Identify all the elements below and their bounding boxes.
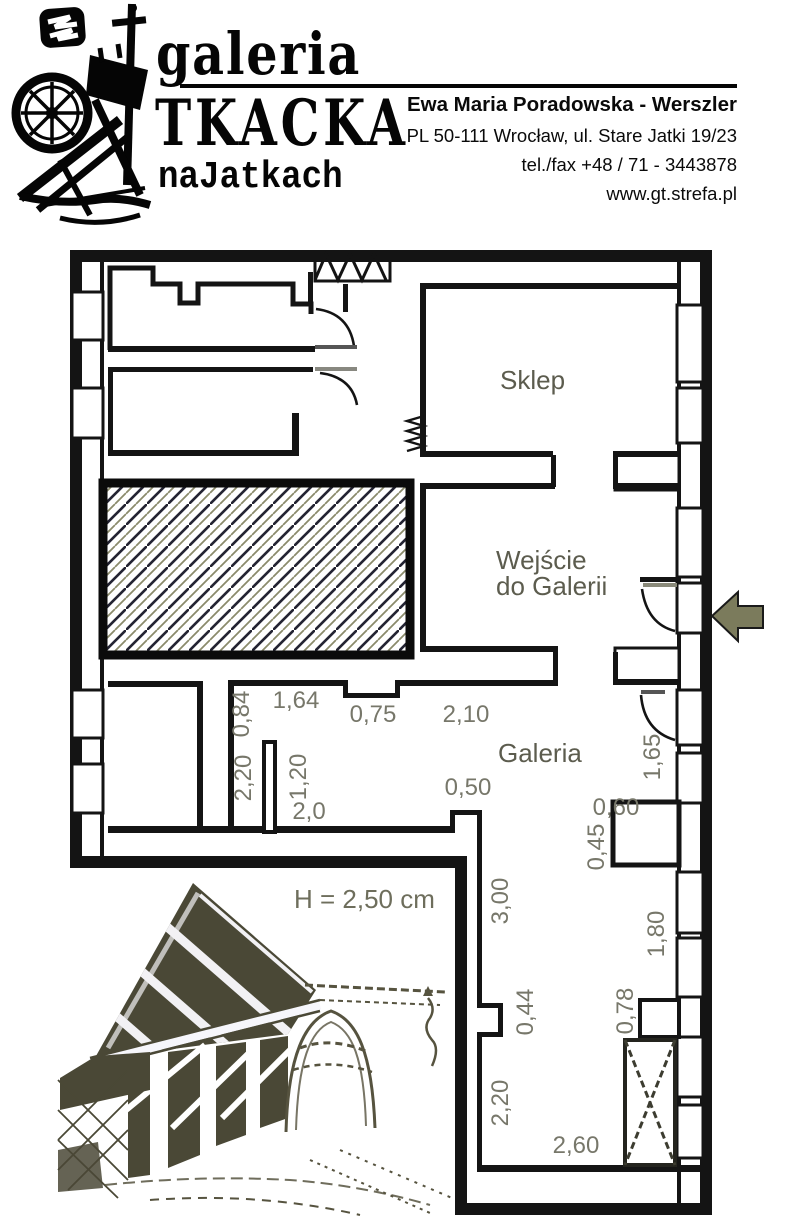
spinning-wheel-logo [0, 0, 170, 235]
entrance-arrow-icon [712, 592, 763, 641]
dim-label: 0,78 [612, 988, 639, 1035]
page: Sklep Wejście do Galerii Galeria H = 2,5… [0, 0, 800, 1232]
outer-walls [70, 250, 712, 1215]
dim-label: 2,10 [443, 701, 490, 728]
dim-label: 1,64 [273, 687, 320, 714]
contact-name: Ewa Maria Poradowska - Werszler [407, 93, 737, 117]
entrance-door-recess [677, 583, 703, 633]
brand-title-galeria: galeria [156, 20, 361, 88]
dim-label: 0,44 [512, 989, 539, 1036]
hatched-area [103, 483, 410, 655]
dim-label: 2,60 [553, 1132, 600, 1159]
dim-label: 0,45 [583, 824, 610, 871]
dim-label: 0,84 [228, 691, 255, 738]
window-embrasure [615, 648, 679, 682]
dim-label: 2,0 [292, 798, 325, 825]
dim-label: 1,80 [643, 911, 670, 958]
room-label-gallery: Galeria [498, 738, 582, 768]
contact-address: PL 50-111 Wrocław, ul. Stare Jatki 19/23 [407, 125, 737, 147]
lightning-badge-icon [39, 6, 87, 48]
building-sketch [58, 883, 452, 1215]
wheel [16, 77, 88, 149]
contact-website: www.gt.strefa.pl [407, 183, 737, 205]
dim-label: 3,00 [487, 878, 514, 925]
dim-label: 1,65 [639, 734, 666, 781]
door-recess [677, 690, 703, 745]
dim-label: 0,60 [593, 794, 640, 821]
partition-bar [264, 742, 275, 832]
height-note: H = 2,50 cm [294, 884, 435, 914]
dim-label: 2,20 [487, 1080, 514, 1127]
dim-label: 0,75 [350, 701, 397, 728]
dimension-labels: 1,64 0,75 2,10 0,50 0,60 2,0 2,60 0,84 2… [228, 687, 670, 1159]
brand-title-najatkach: naJatkach [158, 156, 343, 199]
dim-label: 0,50 [445, 774, 492, 801]
dim-label: 2,20 [230, 755, 257, 802]
dim-label: 1,20 [285, 754, 312, 801]
wall-niche [640, 1000, 679, 1037]
room-label-entrance-2: do Galerii [496, 571, 607, 601]
brand-title-tkacka: TKACKA [155, 86, 409, 161]
contact-block: Ewa Maria Poradowska - Werszler PL 50-11… [407, 93, 737, 212]
contact-phone: tel./fax +48 / 71 - 3443878 [407, 154, 737, 176]
room-label-shop: Sklep [500, 365, 565, 395]
elevator-symbol [625, 1040, 675, 1165]
